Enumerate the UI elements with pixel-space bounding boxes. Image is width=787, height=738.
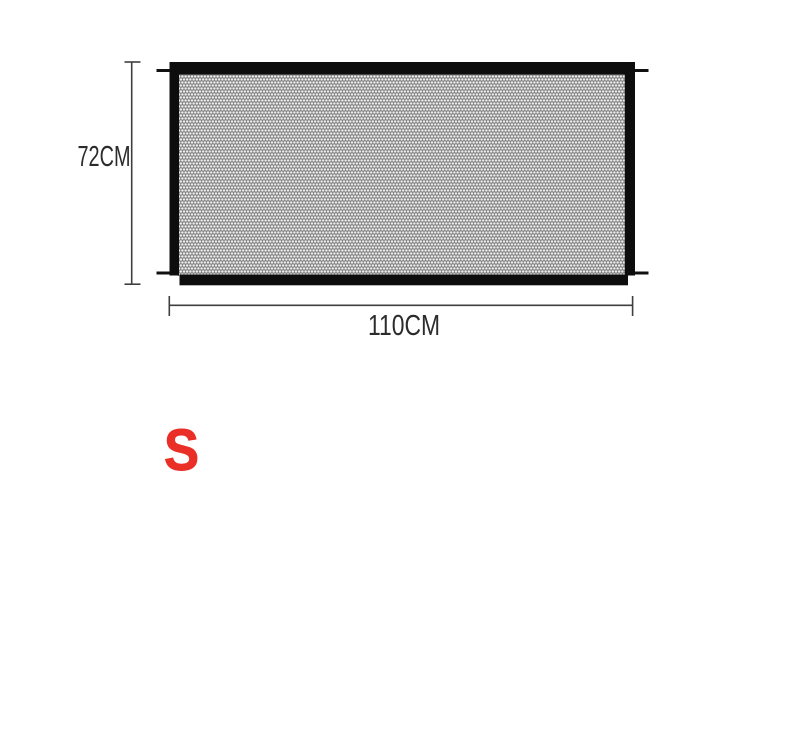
svg-text:110CM: 110CM <box>368 310 440 342</box>
svg-text:72CM: 72CM <box>78 141 131 173</box>
svg-text:S: S <box>164 418 199 483</box>
